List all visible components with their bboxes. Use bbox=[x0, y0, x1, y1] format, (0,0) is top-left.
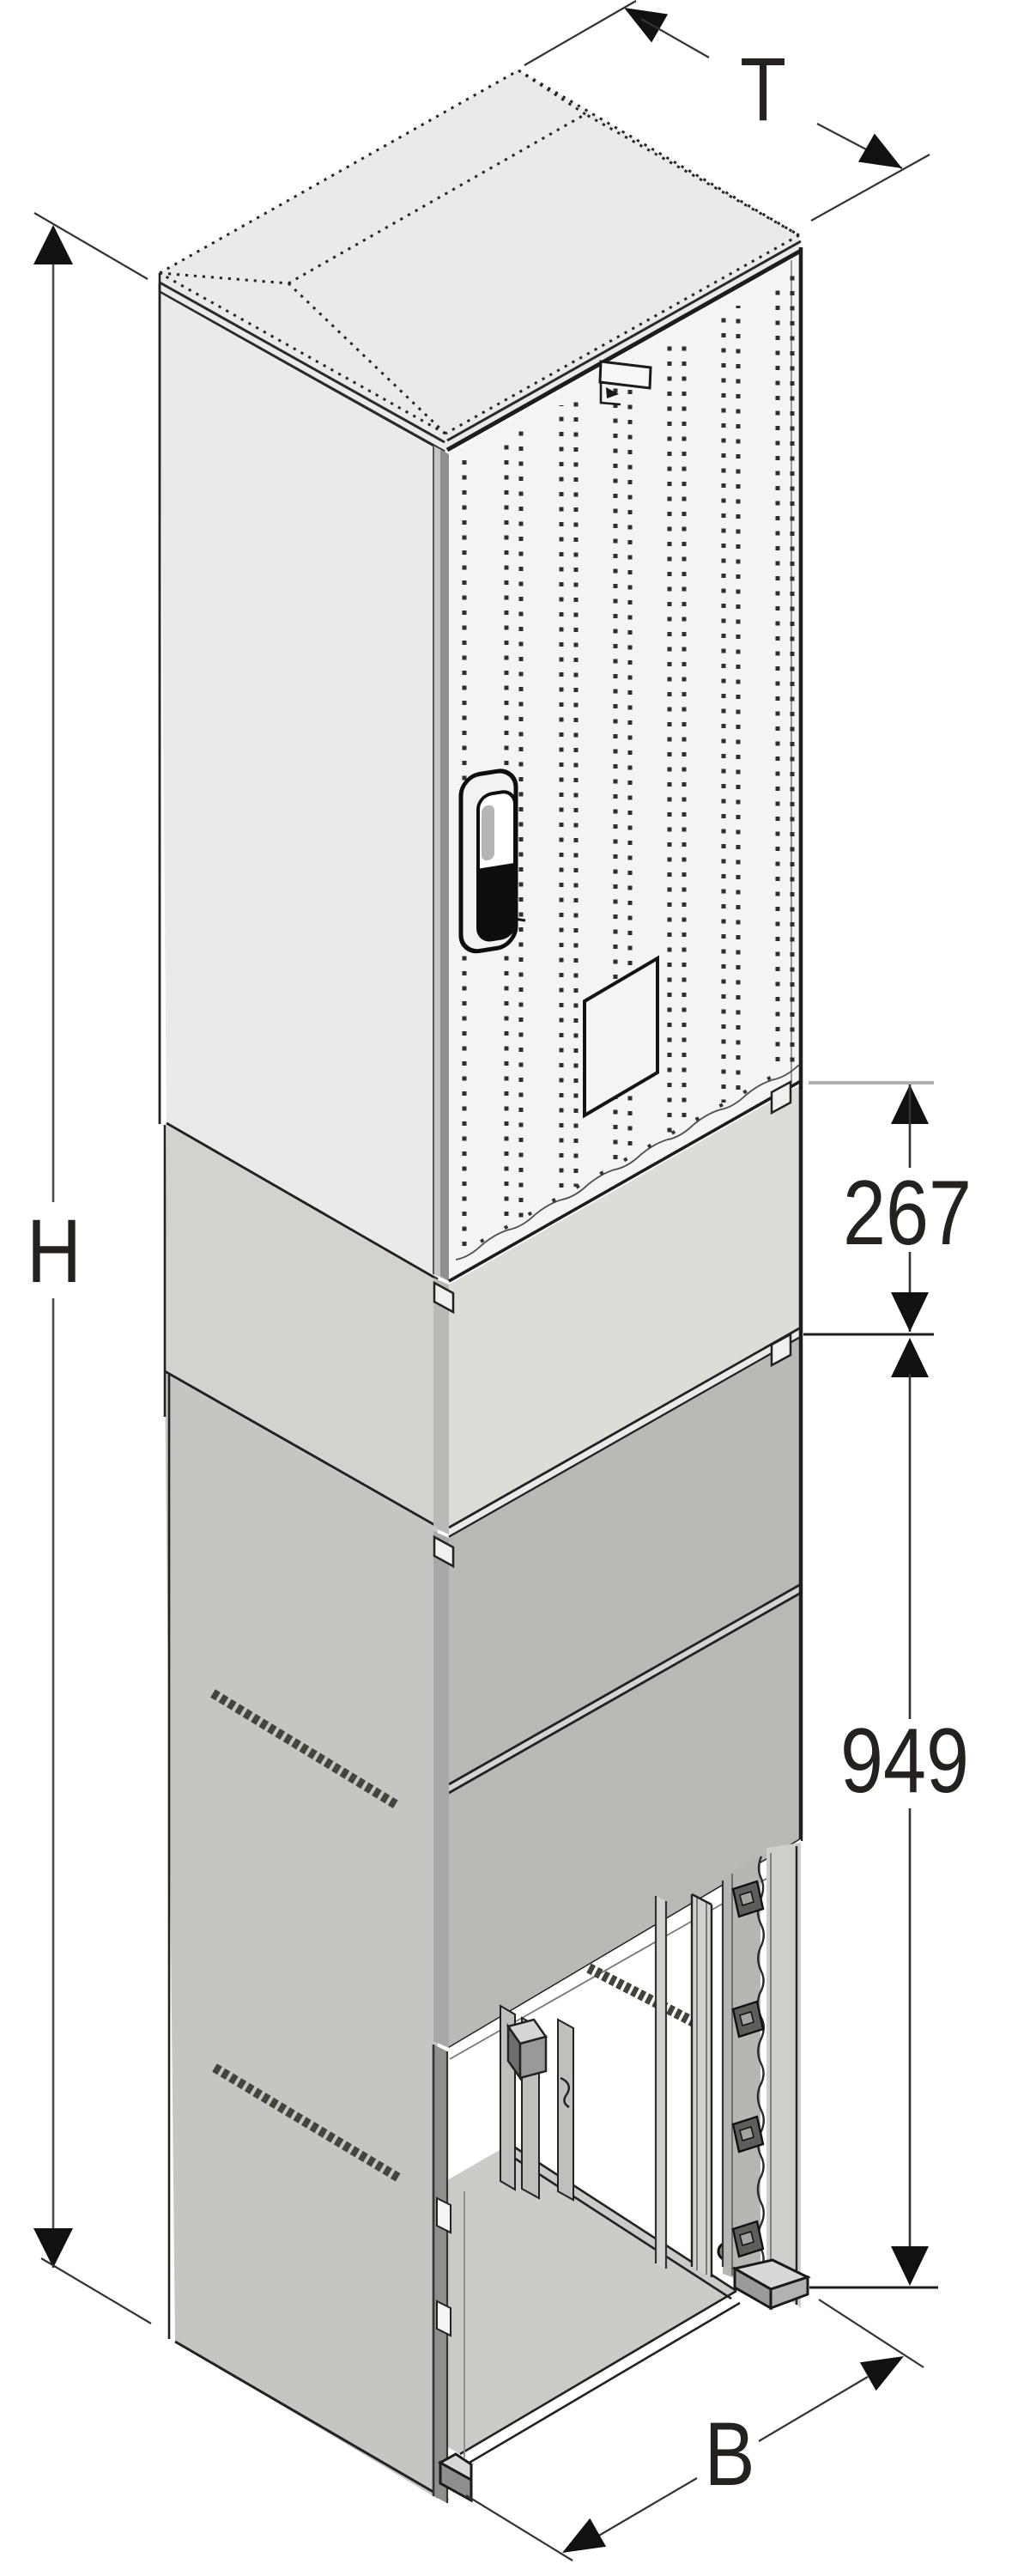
svg-text:T: T bbox=[740, 39, 786, 140]
svg-text:H: H bbox=[27, 1200, 82, 1302]
svg-text:267: 267 bbox=[843, 1162, 972, 1264]
svg-text:949: 949 bbox=[840, 1710, 969, 1812]
svg-text:B: B bbox=[705, 2403, 755, 2505]
